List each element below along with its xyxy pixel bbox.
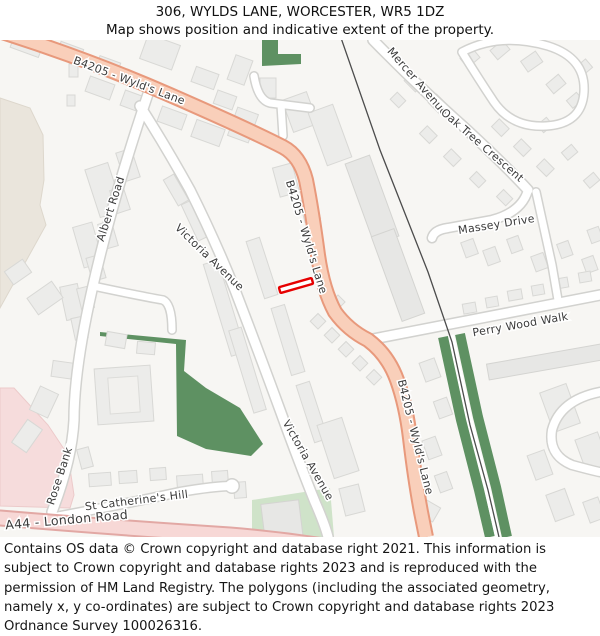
page-subtitle: Map shows position and indicative extent… — [0, 21, 600, 39]
map-svg: B4205 - Wyld's Lane B4205 - Wyld's Lane … — [0, 40, 600, 537]
depot-building — [94, 365, 154, 425]
copyright-footer: Contains OS data © Crown copyright and d… — [0, 537, 600, 636]
page-title: 306, WYLDS LANE, WORCESTER, WR5 1DZ — [0, 3, 600, 21]
map-canvas: B4205 - Wyld's Lane B4205 - Wyld's Lane … — [0, 40, 600, 537]
copyright-text: Contains OS data © Crown copyright and d… — [4, 542, 554, 634]
map-header: 306, WYLDS LANE, WORCESTER, WR5 1DZ Map … — [0, 0, 600, 40]
